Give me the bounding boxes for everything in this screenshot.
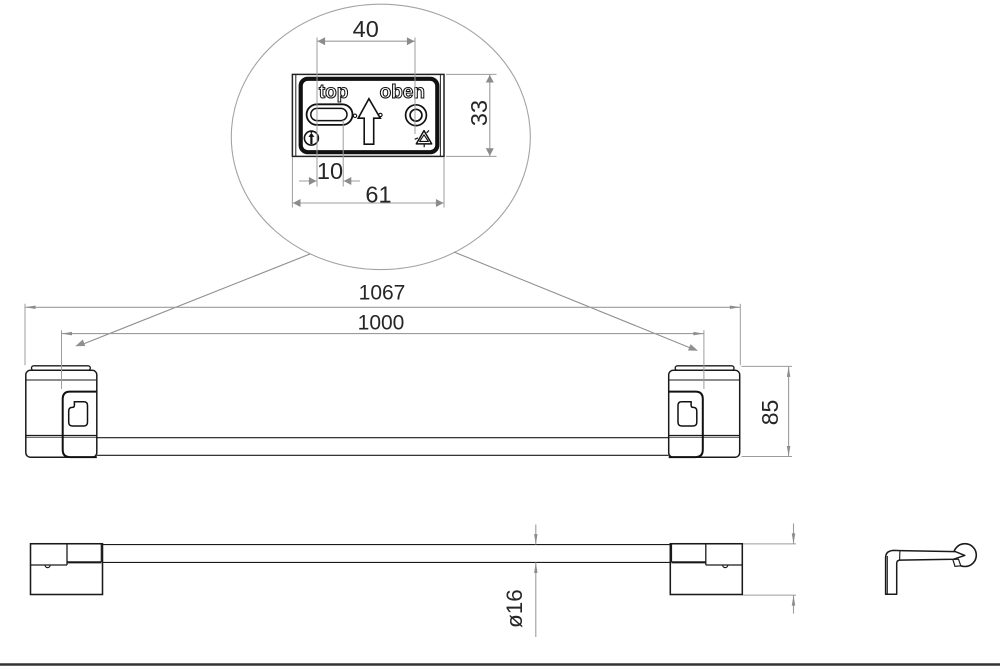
svg-text:33: 33 <box>466 100 492 126</box>
svg-text:top: top <box>319 82 349 103</box>
svg-text:ø16: ø16 <box>502 589 527 628</box>
svg-text:85: 85 <box>757 400 783 426</box>
svg-text:10: 10 <box>317 158 343 184</box>
svg-text:1067: 1067 <box>359 282 406 305</box>
svg-text:oben: oben <box>380 82 425 103</box>
svg-text:40: 40 <box>353 16 379 42</box>
svg-text:1000: 1000 <box>358 312 405 335</box>
svg-text:61: 61 <box>365 182 391 208</box>
